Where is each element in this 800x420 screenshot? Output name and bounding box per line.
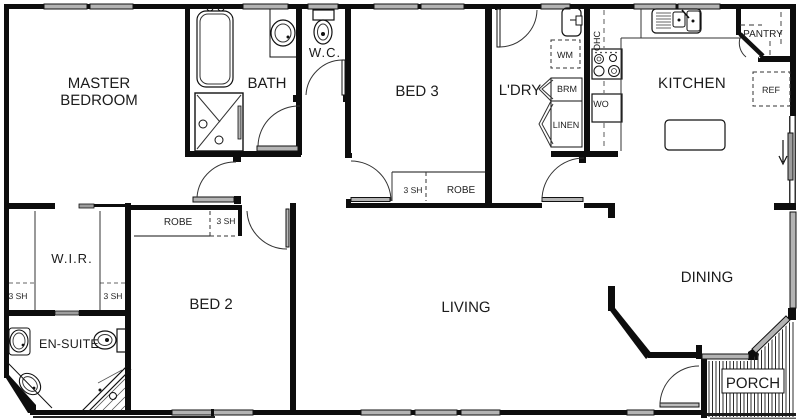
svg-text:BRM: BRM [557,84,577,94]
svg-text:BATH: BATH [248,75,287,92]
svg-text:3 SH: 3 SH [217,216,236,226]
svg-text:WM: WM [557,50,573,60]
svg-text:3 SH: 3 SH [9,291,28,301]
svg-text:WO: WO [593,99,609,109]
svg-text:LIVING: LIVING [441,299,490,316]
svg-text:KITCHEN: KITCHEN [658,75,726,92]
svg-text:BED 3: BED 3 [395,83,438,100]
svg-text:BED 2: BED 2 [189,296,232,313]
svg-text:L'DRY: L'DRY [499,82,542,99]
svg-text:PORCH: PORCH [726,375,780,392]
svg-text:EN-SUITE: EN-SUITE [39,337,99,351]
svg-text:OHC: OHC [592,31,602,52]
svg-text:LINEN: LINEN [553,120,580,130]
svg-text:3 SH: 3 SH [404,185,423,195]
svg-text:PANTRY: PANTRY [743,29,783,40]
svg-text:DINING: DINING [681,269,734,286]
svg-text:REF: REF [762,85,781,95]
svg-text:3 SH: 3 SH [104,291,123,301]
svg-text:ROBE: ROBE [164,217,193,228]
svg-text:BEDROOM: BEDROOM [60,92,138,109]
svg-text:ROBE: ROBE [447,185,476,196]
svg-text:W.I.R.: W.I.R. [51,251,92,266]
svg-text:MASTER: MASTER [68,75,131,92]
svg-text:W.C.: W.C. [309,45,341,60]
